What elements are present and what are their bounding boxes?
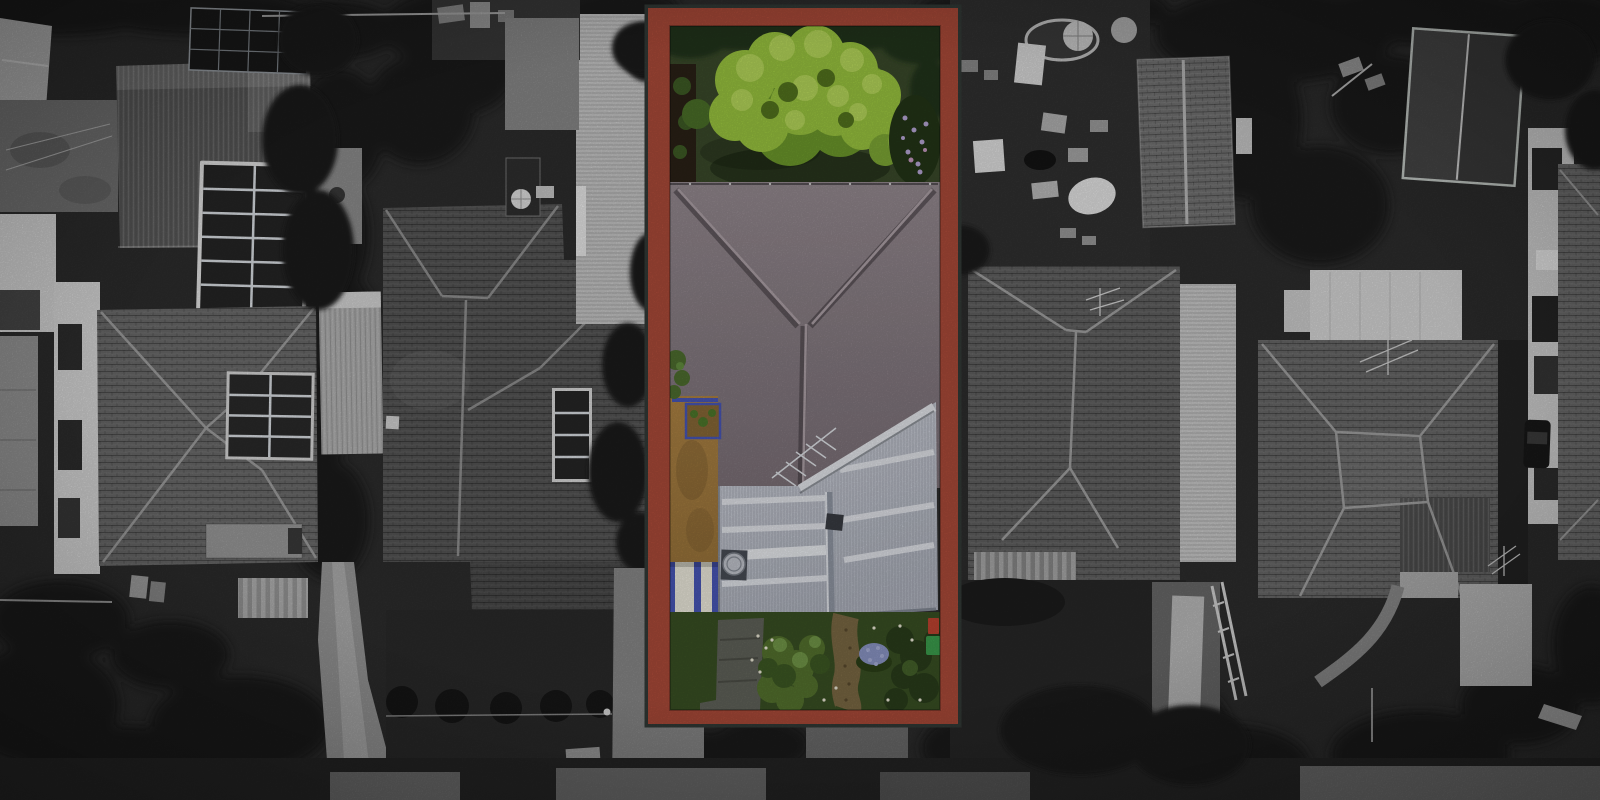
vignette: [0, 0, 1600, 800]
aerial-photo-canvas: [0, 0, 1600, 800]
aerial-photo: [0, 0, 1600, 800]
